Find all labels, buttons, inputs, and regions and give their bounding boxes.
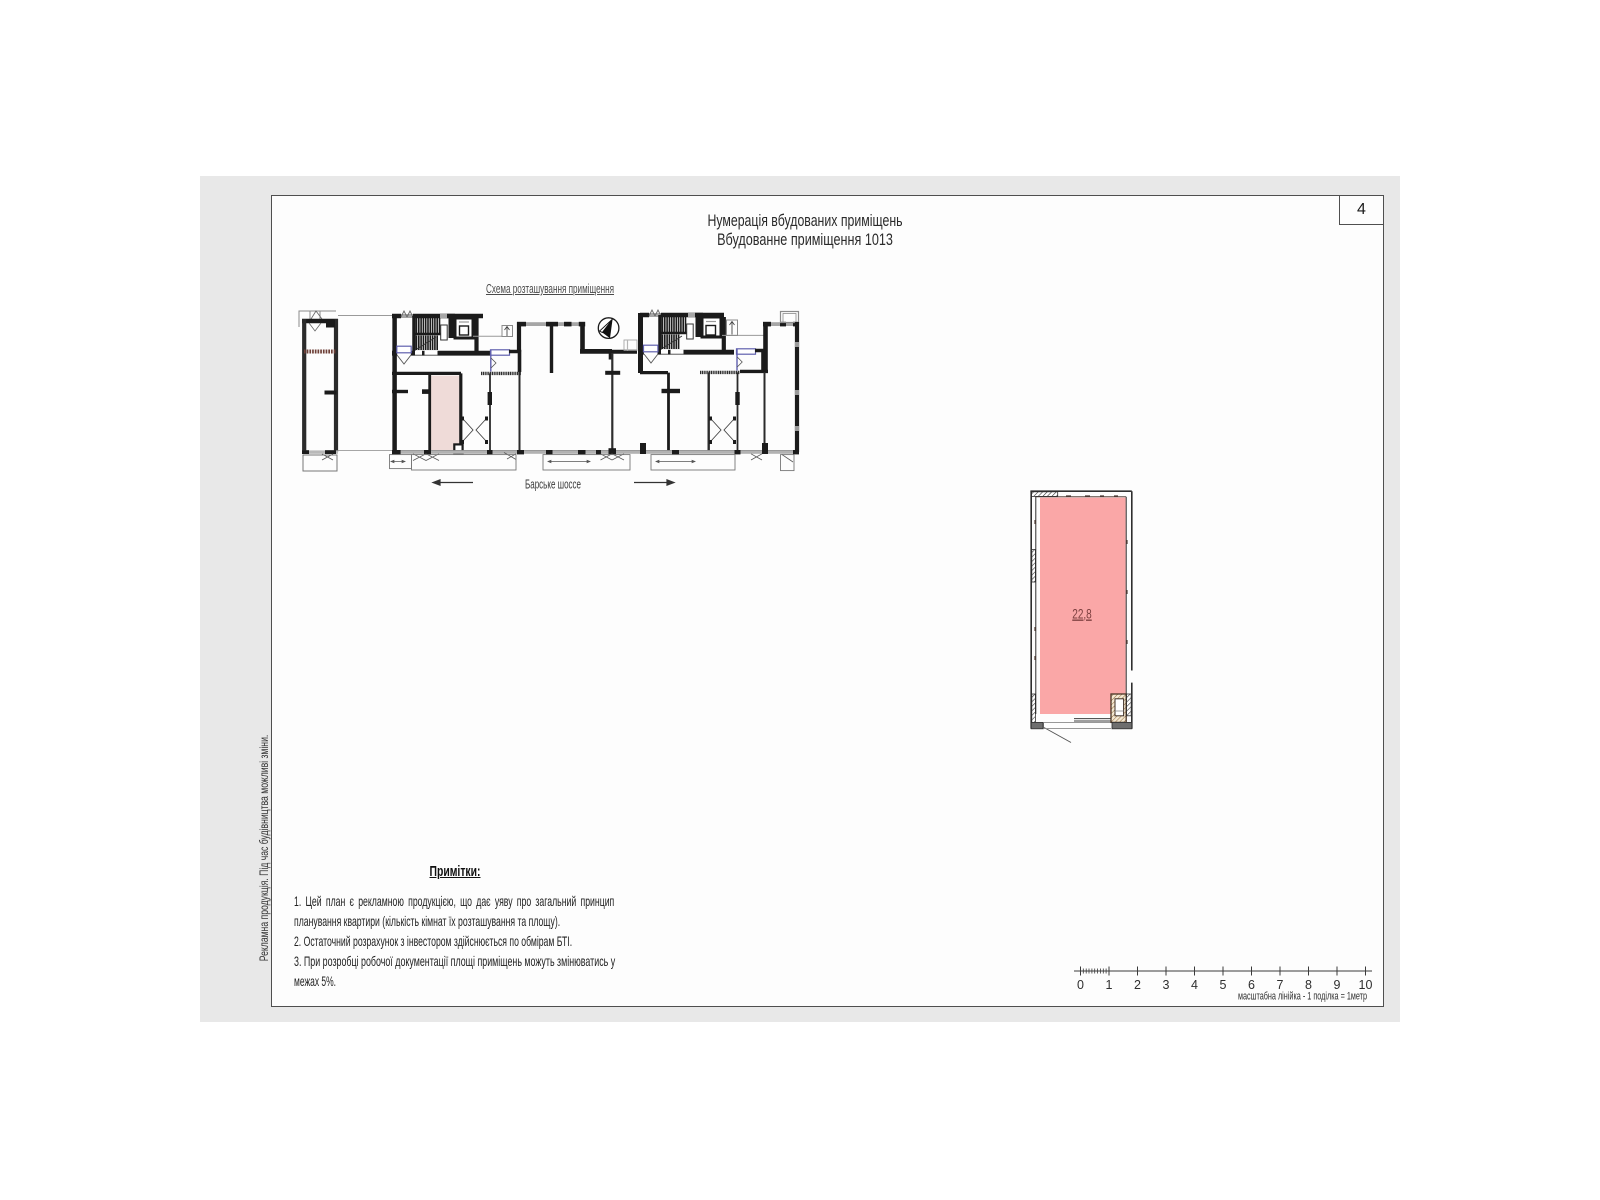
svg-text:Барське шоссе: Барське шоссе bbox=[525, 478, 581, 492]
svg-text:2: 2 bbox=[1134, 978, 1141, 992]
svg-text:масштабна лінійка - 1 поділка: масштабна лінійка - 1 поділка = 1метр bbox=[1238, 991, 1367, 1003]
svg-text:5: 5 bbox=[1220, 978, 1227, 992]
svg-text:1: 1 bbox=[1106, 978, 1113, 992]
svg-text:0: 0 bbox=[1077, 978, 1084, 992]
svg-text:4: 4 bbox=[1191, 978, 1198, 992]
svg-text:3: 3 bbox=[1163, 978, 1170, 992]
svg-text:22,8: 22,8 bbox=[1072, 607, 1092, 622]
